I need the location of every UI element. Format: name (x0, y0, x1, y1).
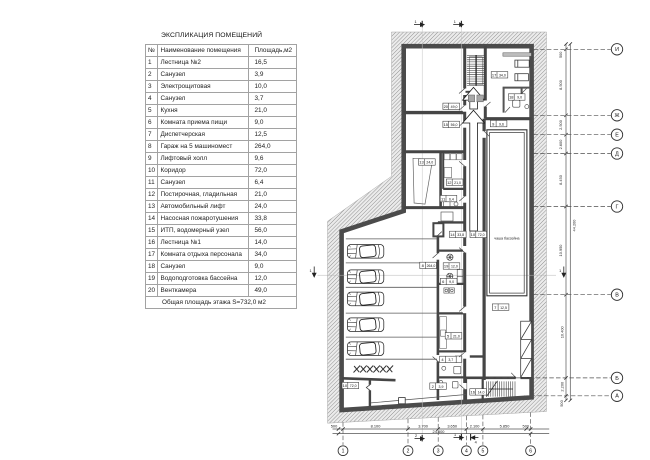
svg-text:И: И (615, 47, 619, 53)
svg-text:4: 4 (465, 449, 468, 455)
svg-text:9,0: 9,0 (517, 96, 522, 100)
svg-text:34,0: 34,0 (499, 74, 506, 78)
svg-text:18: 18 (509, 95, 514, 100)
svg-text:чаша бассейна: чаша бассейна (494, 237, 519, 241)
svg-text:56,0: 56,0 (451, 123, 458, 127)
svg-text:500: 500 (523, 423, 530, 428)
svg-text:Б: Б (615, 376, 619, 382)
svg-text:24.500: 24.500 (433, 429, 446, 434)
svg-text:4: 4 (475, 441, 477, 445)
svg-text:2.100: 2.100 (470, 423, 481, 428)
svg-text:12,0: 12,0 (451, 265, 458, 269)
svg-text:10: 10 (343, 383, 348, 388)
svg-text:3,7: 3,7 (448, 358, 453, 362)
svg-text:5.850: 5.850 (500, 423, 511, 428)
svg-text:1: 1 (454, 20, 456, 24)
svg-text:В: В (615, 293, 619, 299)
svg-text:2: 2 (407, 449, 410, 455)
svg-text:20: 20 (444, 104, 449, 109)
svg-text:Е: Е (615, 133, 619, 139)
svg-text:1: 1 (415, 20, 417, 24)
svg-text:8.450: 8.450 (558, 174, 563, 185)
svg-text:3.700: 3.700 (418, 423, 429, 428)
svg-text:10.950: 10.950 (558, 244, 563, 257)
svg-text:21,0: 21,0 (453, 335, 460, 339)
svg-text:500: 500 (331, 423, 338, 428)
svg-text:2: 2 (415, 434, 417, 438)
svg-text:6,4: 6,4 (449, 197, 454, 201)
svg-text:8.500: 8.500 (558, 79, 563, 90)
svg-text:5: 5 (482, 449, 485, 455)
svg-text:Ж: Ж (615, 113, 620, 119)
svg-text:15: 15 (444, 122, 449, 127)
svg-text:9,0: 9,0 (449, 280, 454, 284)
svg-text:72,0: 72,0 (350, 384, 357, 388)
svg-text:14: 14 (450, 232, 455, 237)
svg-text:44.200: 44.200 (571, 219, 576, 232)
svg-text:12,5: 12,5 (500, 306, 507, 310)
svg-text:Г: Г (616, 204, 619, 210)
svg-text:10: 10 (471, 232, 476, 237)
svg-text:3,9: 3,9 (439, 385, 444, 389)
svg-text:1: 1 (310, 269, 312, 273)
svg-text:9,6: 9,6 (499, 122, 504, 126)
svg-text:19: 19 (444, 264, 449, 269)
svg-text:17: 17 (492, 73, 497, 78)
svg-text:49,0: 49,0 (451, 105, 458, 109)
svg-text:А: А (615, 394, 619, 400)
svg-text:264,0: 264,0 (427, 264, 436, 268)
svg-text:21,0: 21,0 (454, 181, 461, 185)
svg-text:500: 500 (559, 399, 564, 406)
svg-text:500: 500 (558, 51, 563, 58)
svg-text:33,8: 33,8 (457, 233, 464, 237)
svg-text:1: 1 (342, 449, 345, 455)
svg-text:Д: Д (615, 151, 619, 157)
svg-text:3.650: 3.650 (447, 423, 458, 428)
svg-text:2.200: 2.200 (560, 381, 565, 392)
svg-text:8.100: 8.100 (371, 423, 382, 428)
svg-text:10.400: 10.400 (560, 326, 565, 339)
svg-text:1: 1 (454, 433, 456, 437)
svg-text:14,0: 14,0 (478, 391, 485, 395)
svg-text:72,0: 72,0 (478, 233, 485, 237)
svg-text:1: 1 (559, 269, 561, 273)
svg-text:2.600: 2.600 (558, 139, 563, 150)
svg-text:16: 16 (470, 390, 475, 395)
svg-text:12: 12 (447, 180, 452, 185)
svg-text:6: 6 (529, 449, 532, 455)
svg-text:3: 3 (437, 449, 440, 455)
svg-text:24,0: 24,0 (426, 161, 433, 165)
svg-text:2.500: 2.500 (558, 119, 563, 130)
svg-text:13: 13 (419, 160, 424, 165)
